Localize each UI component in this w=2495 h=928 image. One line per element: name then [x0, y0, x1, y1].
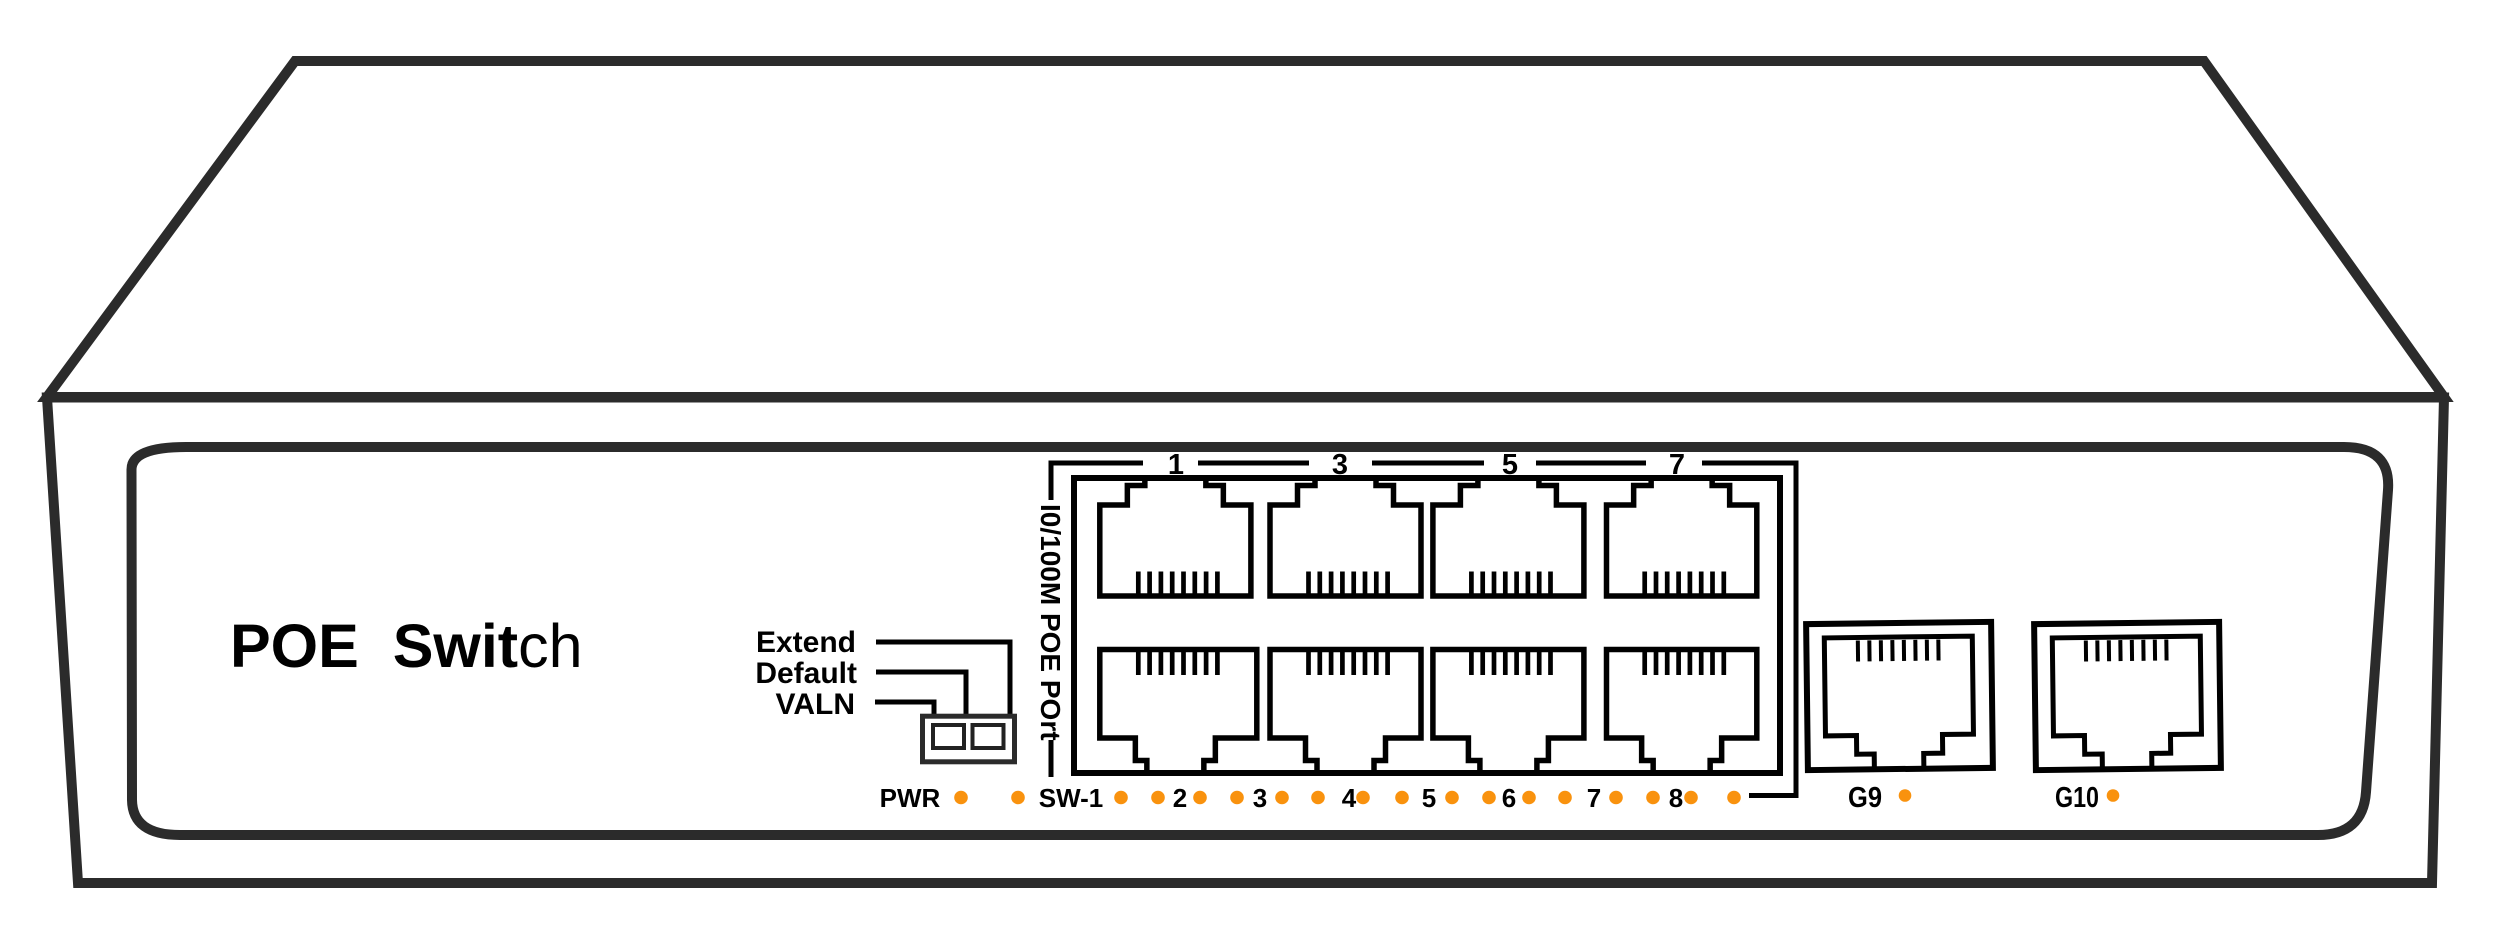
svg-text:SW-1: SW-1 [1039, 783, 1103, 813]
svg-text:7: 7 [1587, 783, 1601, 813]
svg-text:8: 8 [1669, 783, 1683, 813]
svg-text:G9: G9 [1848, 782, 1882, 814]
svg-text:VALN: VALN [776, 688, 855, 721]
svg-text:3: 3 [1253, 783, 1267, 813]
svg-text:2: 2 [1173, 783, 1187, 813]
svg-text:G10: G10 [2055, 782, 2099, 814]
svg-text:5: 5 [1422, 783, 1436, 813]
svg-text:Extend: Extend [756, 626, 856, 659]
svg-text:Default: Default [755, 657, 857, 690]
svg-text:6: 6 [1502, 783, 1516, 813]
svg-text:PWR: PWR [880, 783, 941, 813]
svg-text:I0/100M POE POrt: I0/100M POE POrt [1035, 504, 1066, 741]
svg-text:POE Switch: POE Switch [230, 612, 583, 680]
svg-text:4: 4 [1342, 783, 1357, 813]
